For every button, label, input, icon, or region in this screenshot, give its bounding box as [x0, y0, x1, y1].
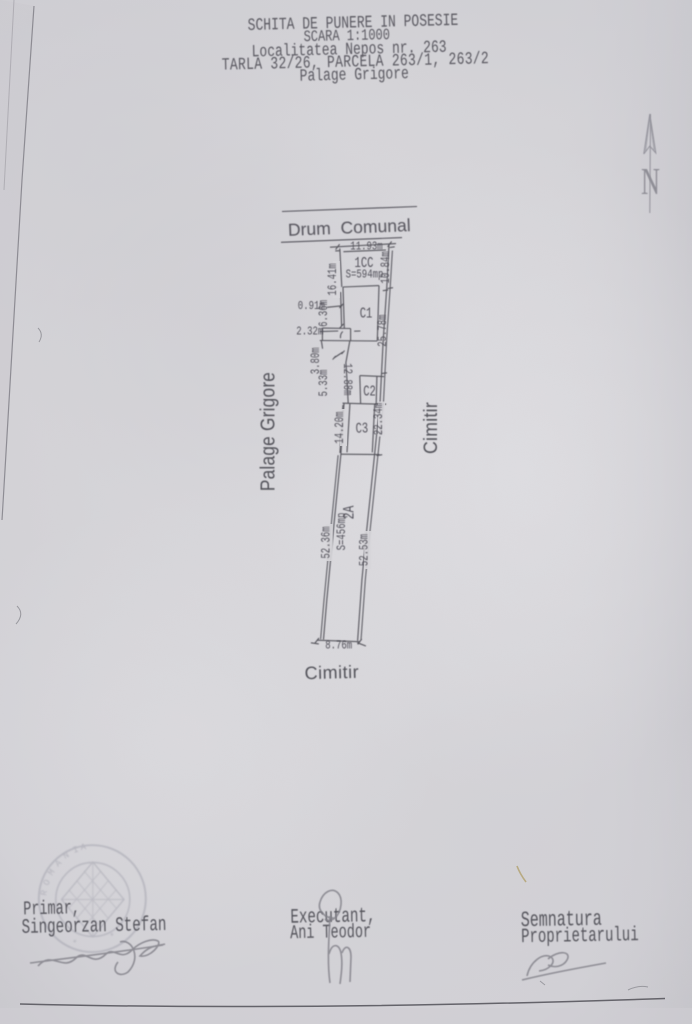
svg-text:16.41m: 16.41m [327, 263, 341, 296]
svg-text:52.53m: 52.53m [358, 534, 372, 567]
svg-text:Proprietarului: Proprietarului [521, 924, 639, 949]
svg-text:Palage Grigore: Palage Grigore [256, 372, 279, 491]
svg-text:22.34m: 22.34m [372, 403, 386, 436]
svg-text:C1: C1 [360, 305, 373, 322]
svg-text:12.88m: 12.88m [339, 363, 353, 396]
svg-text:Palage Grigore: Palage Grigore [299, 63, 409, 86]
svg-text:14.20m: 14.20m [334, 411, 348, 444]
svg-text:Singeorzan Stefan: Singeorzan Stefan [21, 914, 166, 940]
svg-text:25.78m: 25.78m [377, 314, 391, 347]
svg-text:11.93m: 11.93m [350, 240, 382, 254]
svg-text:C3: C3 [355, 420, 368, 438]
svg-text:Cimitir: Cimitir [419, 402, 441, 454]
svg-text:Cimitir: Cimitir [304, 662, 359, 683]
svg-text:5.33m: 5.33m [317, 369, 331, 396]
svg-text:N: N [641, 161, 660, 203]
svg-text:S=594mp: S=594mp [346, 268, 384, 282]
svg-text:6.36m: 6.36m [318, 300, 332, 327]
svg-text:2.32m: 2.32m [296, 325, 323, 339]
svg-text:C2: C2 [363, 383, 376, 400]
svg-text:8.76m: 8.76m [325, 639, 352, 653]
svg-text:S=456mp: S=456mp [336, 513, 350, 551]
svg-text:10.84m: 10.84m [380, 251, 394, 284]
svg-text:Ani Teodor: Ani Teodor [290, 922, 371, 946]
svg-text:52.36m: 52.36m [320, 526, 334, 559]
